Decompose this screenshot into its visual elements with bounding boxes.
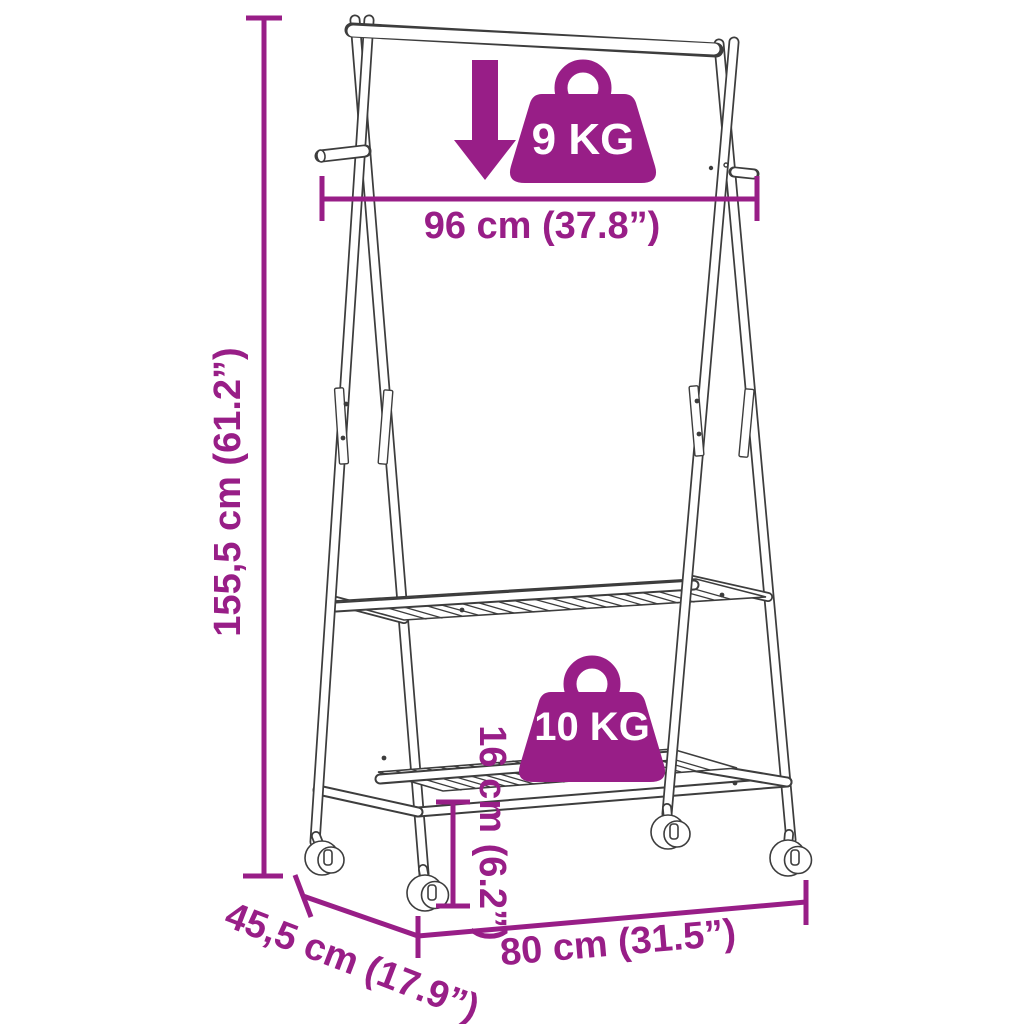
shelf-capacity-label: 10 KG — [534, 707, 650, 747]
hanging-rail — [352, 30, 716, 50]
caster-wheel-back-right — [770, 834, 812, 876]
height-label: 155,5 cm (61.2”) — [209, 347, 247, 636]
rail-capacity-label: 9 KG — [532, 118, 635, 162]
back-right-leg — [719, 44, 791, 840]
down-arrow-icon — [454, 60, 516, 180]
dimension-line-height — [243, 18, 283, 876]
rail-width-label: 96 cm (37.8”) — [424, 207, 661, 245]
ground-clearance-label: 16 cm (6.2”) — [473, 725, 511, 940]
side-hook-right — [734, 172, 754, 174]
caster-wheel-front-right — [651, 808, 690, 849]
product-dimension-diagram: 96 cm (37.8”) 155,5 cm (61.2”) 16 cm (6.… — [0, 0, 1024, 1024]
